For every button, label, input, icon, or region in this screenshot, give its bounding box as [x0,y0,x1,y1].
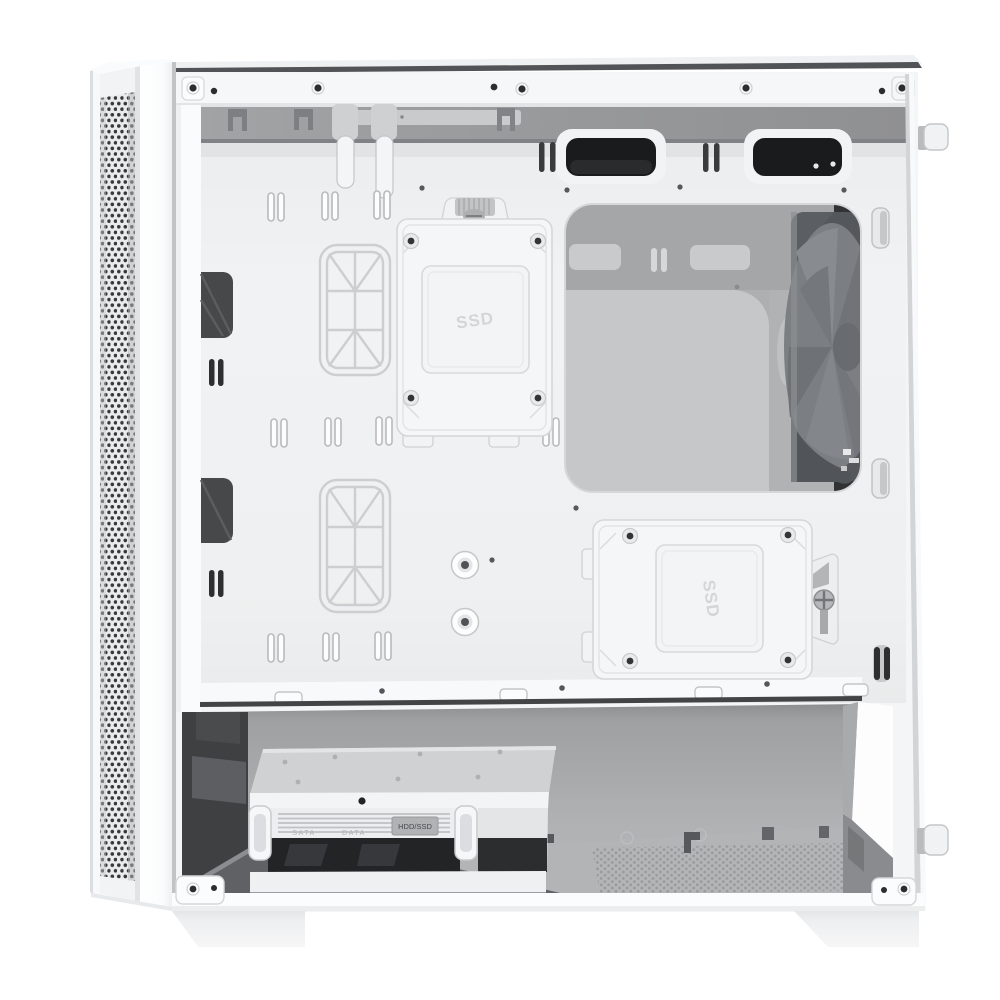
svg-text:HDD/SSD: HDD/SSD [398,822,432,831]
svg-text:DATA: DATA [342,830,366,837]
svg-text:SATA: SATA [292,830,315,837]
